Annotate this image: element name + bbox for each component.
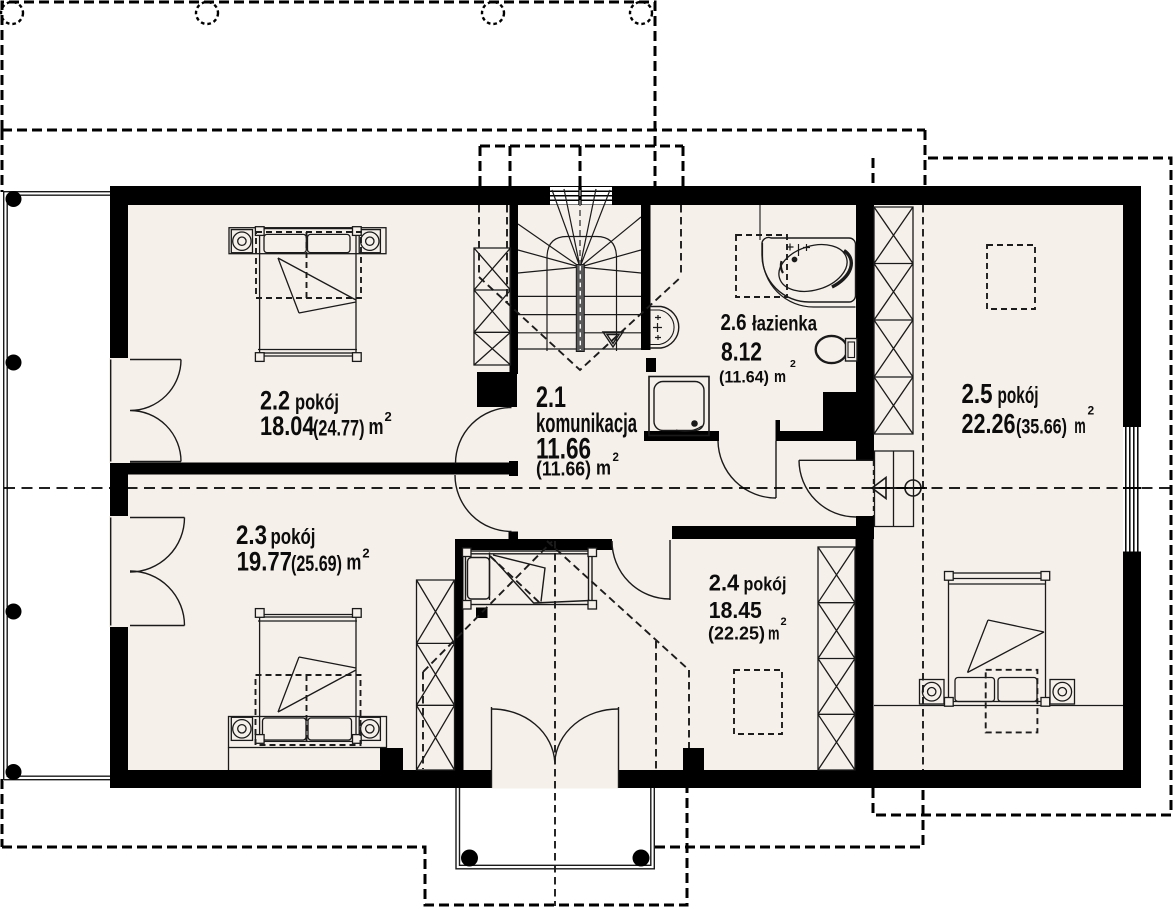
svg-text:m: m (774, 368, 786, 386)
svg-text:2: 2 (1088, 404, 1095, 418)
svg-text:m: m (346, 550, 361, 575)
svg-text:m: m (768, 623, 780, 644)
svg-text:2: 2 (613, 452, 619, 464)
svg-text:(11.64): (11.64) (719, 369, 769, 387)
svg-text:18.45: 18.45 (709, 597, 762, 623)
svg-text:2: 2 (362, 546, 369, 561)
svg-text:19.77: 19.77 (237, 546, 292, 576)
svg-text:m: m (369, 414, 384, 439)
svg-text:2: 2 (385, 409, 392, 424)
svg-text:(25.69): (25.69) (291, 551, 342, 576)
svg-text:m: m (596, 457, 611, 480)
svg-text:2.6: 2.6 (721, 309, 747, 335)
svg-text:m: m (1074, 415, 1086, 438)
svg-text:(22.25): (22.25) (708, 623, 765, 644)
svg-text:2.4: 2.4 (709, 569, 739, 595)
svg-text:8.12: 8.12 (721, 339, 762, 367)
svg-text:2: 2 (781, 616, 787, 628)
svg-text:(11.66): (11.66) (536, 458, 591, 481)
svg-text:2: 2 (790, 358, 796, 370)
svg-text:(24.77): (24.77) (313, 416, 365, 441)
svg-text:łazienka: łazienka (752, 313, 817, 336)
svg-text:18.04: 18.04 (260, 411, 315, 441)
svg-text:pokój: pokój (998, 382, 1039, 408)
svg-text:2.3: 2.3 (236, 520, 267, 550)
svg-text:pokój: pokój (744, 573, 787, 595)
svg-text:pokój: pokój (271, 524, 316, 549)
svg-text:(35.66): (35.66) (1016, 415, 1067, 438)
svg-text:2.5: 2.5 (962, 378, 993, 409)
svg-text:22.26: 22.26 (962, 408, 1016, 439)
